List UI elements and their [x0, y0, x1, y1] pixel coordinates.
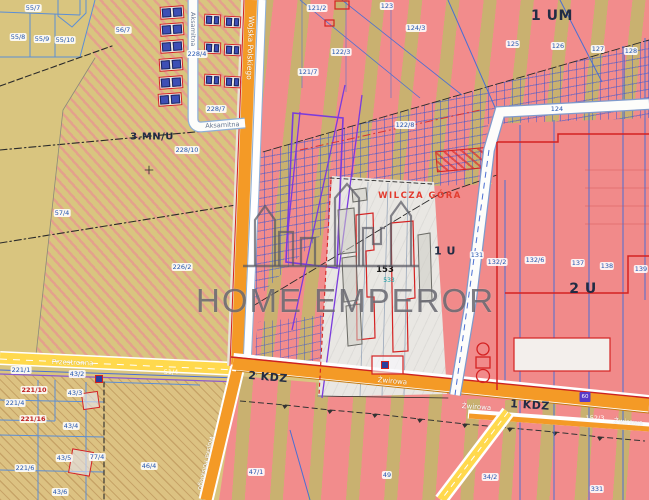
building-pair — [224, 44, 242, 57]
parcel-number-221-1: 221/1 — [11, 366, 32, 374]
building-pair — [160, 39, 185, 54]
parcel-number-55-7: 55/7 — [25, 4, 42, 12]
building-pair — [204, 42, 222, 55]
building-outline — [68, 448, 94, 476]
parcel-number-127: 127 — [591, 45, 605, 53]
zone-label-1u: 1 U — [434, 245, 456, 258]
street-name-przestronna: Przestronna — [52, 358, 94, 367]
parcel-number-60: 60 — [580, 392, 591, 402]
building-marker — [381, 361, 389, 369]
parcel-number-131: 131 — [470, 251, 484, 259]
parcel-number-57-4: 57/4 — [54, 209, 71, 217]
parcel-number-228-10: 228/10 — [175, 146, 200, 154]
parcel-number-152-3: 152/3 — [586, 414, 605, 422]
watermark-skyline-logo — [235, 180, 425, 272]
parcel-number-128: 128 — [624, 47, 638, 55]
parcel-number-121-2: 121/2 — [307, 4, 328, 12]
parcel-number-122-3: 122/3 — [331, 48, 352, 56]
building-pair — [160, 22, 185, 37]
road-przestronna — [0, 358, 240, 382]
parcel-number-51-4: 51/4 — [164, 368, 179, 376]
building-pair — [158, 92, 183, 107]
zone-label-1um: 1 UM — [531, 8, 573, 24]
parcel-number-43-6: 43/6 — [52, 488, 69, 496]
parcel-number-56-7: 56/7 — [115, 26, 132, 34]
red-hatched-marker — [435, 147, 492, 173]
building-pair — [159, 57, 184, 72]
red-utility-line — [300, 110, 480, 150]
parcel-number-47-1: 47/1 — [248, 468, 265, 476]
parcel-number-221-10: 221/10 — [21, 386, 48, 394]
parcel-number-34-2: 34/2 — [482, 473, 499, 481]
parcel-number-221-4: 221/4 — [5, 399, 26, 407]
parcel-number-123: 123 — [380, 2, 394, 10]
zone-label-3mnu: 3.MN/U — [130, 132, 174, 143]
parcel-number-122-8: 122/8 — [395, 121, 416, 129]
parcel-number-55-8: 55/8 — [10, 33, 27, 41]
street-name-wojska-polskiego: Wojska Polskiego — [245, 16, 256, 80]
street-name-zwirowa-west: Żwirowa — [377, 376, 407, 387]
parcel-number-221-6: 221/6 — [15, 464, 36, 472]
parcel-number-55-9: 55/9 — [34, 35, 51, 43]
parcel-number-49: 49 — [382, 471, 392, 479]
zone-label-1kdz: 1 KDZ — [510, 397, 550, 413]
building-pair — [224, 76, 242, 89]
zoning-map-canvas[interactable]: 1 UM 3.MN/U 2 U 1 U 2 KDZ 1 KDZ WILCZA G… — [0, 0, 649, 500]
parcel-number-221-16: 221/16 — [20, 415, 47, 423]
parcel-number-55-10: 55/10 — [55, 36, 76, 44]
parcel-number-46-4: 46/4 — [141, 462, 158, 470]
zone-label-2u: 2 U — [569, 281, 596, 297]
parcel-number-124: 124 — [550, 105, 564, 113]
building-pair — [224, 16, 242, 29]
street-name-zwirowa-east: Żwirowa — [613, 417, 643, 428]
parcel-number-139: 139 — [634, 265, 648, 273]
street-name-aksamitna-vertical: Aksamitna — [189, 12, 197, 46]
parcel-number-125: 125 — [506, 40, 520, 48]
street-name-wojska-polskiego-south: Wojska Polskiego — [196, 435, 216, 491]
parcel-number-132-2: 132/2 — [487, 258, 508, 266]
building-outline — [81, 391, 100, 410]
zone-label-2kdz: 2 KDZ — [248, 369, 289, 385]
tick-boundaries — [240, 310, 645, 441]
parcel-number-228-7: 228/7 — [206, 105, 227, 113]
parcel-number-138: 138 — [600, 262, 614, 270]
building-pair — [204, 74, 222, 87]
parcel-number-226-2: 226/2 — [172, 263, 193, 271]
building-pair — [159, 75, 184, 90]
parcel-number-126: 126 — [551, 42, 565, 50]
parcel-number-124-3: 124/3 — [406, 24, 427, 32]
watermark-brand-text: HOME EMPEROR — [196, 282, 495, 320]
road-southeast-yellow — [441, 412, 508, 500]
parcel-number-137: 137 — [571, 259, 585, 267]
street-name-aksamitna-horizontal: Aksamitna — [205, 120, 240, 130]
parcel-number-121-7: 121/7 — [298, 68, 319, 76]
parcel-lines-northwest — [0, 0, 95, 57]
street-name-zwirowa-mid: Żwirowa — [461, 402, 491, 412]
parcel-number-43-4: 43/4 — [63, 422, 80, 430]
building-pair — [204, 14, 222, 27]
parcel-number-132-6: 132/6 — [525, 256, 546, 264]
building-pair — [160, 5, 185, 20]
parcel-lines-southwest — [0, 380, 200, 500]
parcel-number-43-2: 43/2 — [69, 370, 86, 378]
building-marker — [95, 375, 103, 383]
parcel-number-331: 331 — [590, 485, 604, 493]
road-kdz-zwirowa — [231, 357, 649, 429]
